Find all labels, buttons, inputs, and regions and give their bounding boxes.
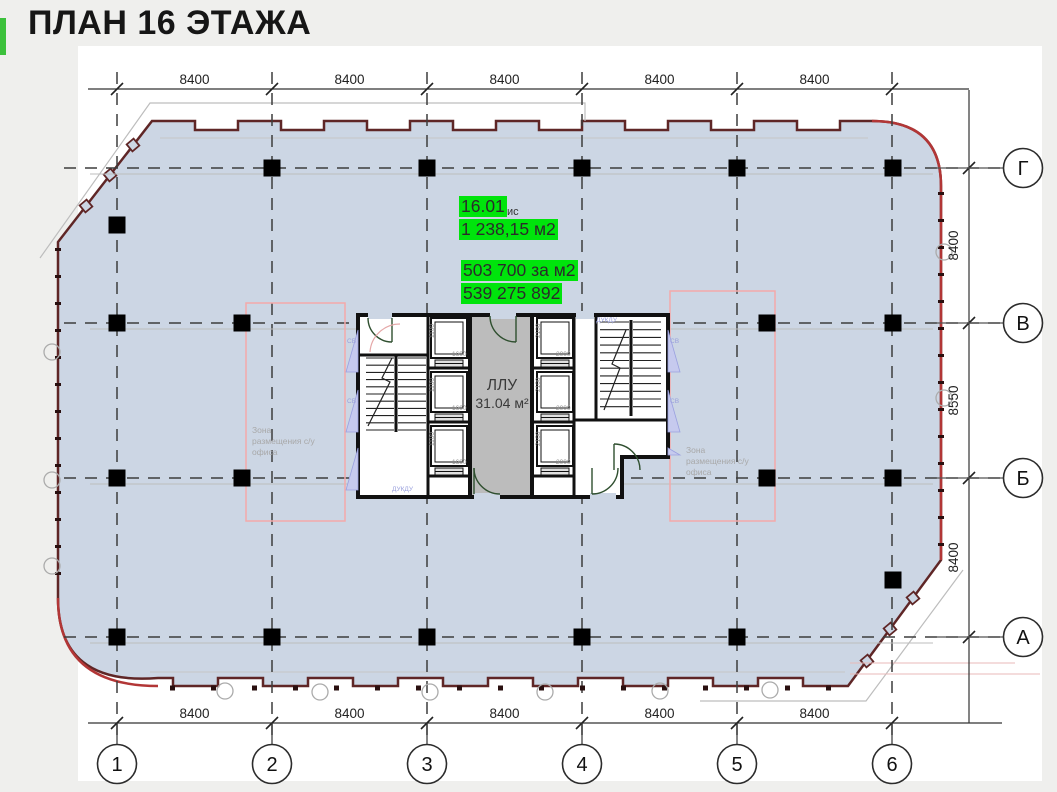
column bbox=[109, 217, 126, 234]
axis-label: В bbox=[1016, 313, 1029, 335]
lobby-name: ЛЛУ bbox=[487, 377, 517, 394]
dimension-label: 8400 bbox=[334, 706, 364, 721]
dimension-label: 8400 bbox=[489, 72, 519, 87]
column bbox=[885, 315, 902, 332]
dimension-label: 8400 bbox=[946, 230, 961, 260]
dimension-label: 8400 bbox=[489, 706, 519, 721]
column bbox=[885, 160, 902, 177]
dimension-label: 8400 bbox=[644, 72, 674, 87]
column bbox=[264, 160, 281, 177]
vent-label: СВ bbox=[347, 398, 356, 405]
vent-label: СВ bbox=[670, 338, 679, 345]
sanitary-zone-right-label: Зона размещения с/у офиса bbox=[686, 445, 776, 478]
page-title: ПЛАН 16 ЭТАЖА bbox=[28, 4, 311, 43]
dimension-label: 8400 bbox=[946, 542, 961, 572]
axis-label: 6 bbox=[886, 754, 897, 776]
unit-total-price-label[interactable]: 539 275 892 bbox=[461, 283, 562, 304]
dimension-label: 8550 bbox=[946, 385, 961, 415]
elevator-dim-label: 2000 bbox=[556, 459, 571, 466]
elevator-dim-label: 1100 bbox=[429, 378, 436, 392]
column bbox=[234, 470, 251, 487]
axis-label: Б bbox=[1016, 468, 1029, 490]
elevator-dim-label: 1600 bbox=[452, 405, 467, 412]
column bbox=[419, 160, 436, 177]
axis-label: А bbox=[1016, 627, 1030, 649]
elevator-dim-label: 1600 bbox=[452, 459, 467, 466]
dimension-label: 8400 bbox=[179, 72, 209, 87]
dimension-label: 8400 bbox=[179, 706, 209, 721]
unit-suffix-label: ис bbox=[507, 206, 519, 218]
unit-price-per-m2-label[interactable]: 503 700 за м2 bbox=[461, 260, 578, 281]
column bbox=[234, 315, 251, 332]
axis-label: 3 bbox=[421, 754, 432, 776]
column bbox=[759, 315, 776, 332]
elevator-dim-label: 2100 bbox=[535, 377, 542, 392]
elevator-dim-label: 1600 bbox=[452, 351, 467, 358]
axis-label: 1 bbox=[111, 754, 122, 776]
column bbox=[264, 629, 281, 646]
column bbox=[109, 470, 126, 487]
unit-number-label[interactable]: 16.01 bbox=[459, 196, 507, 217]
column bbox=[729, 629, 746, 646]
column bbox=[109, 315, 126, 332]
elevator-dim-label: 1100 bbox=[429, 432, 436, 446]
duct-label: ДУКДУ bbox=[596, 317, 618, 324]
dimension-label: 8400 bbox=[799, 72, 829, 87]
axis-label: 5 bbox=[731, 754, 742, 776]
vent-label: СВ bbox=[347, 338, 356, 345]
duct-label: ДУКДУ bbox=[392, 486, 414, 493]
column bbox=[109, 629, 126, 646]
green-tab bbox=[0, 18, 6, 55]
vent-label: СВ bbox=[670, 398, 679, 405]
unit-area-label[interactable]: 1 238,15 м2 bbox=[459, 219, 558, 240]
dimension-label: 8400 bbox=[334, 72, 364, 87]
column bbox=[574, 160, 591, 177]
column bbox=[574, 629, 591, 646]
column bbox=[885, 572, 902, 589]
floor-plan-page: СВ СВ СВ СВ ДУКДУ ДУКДУ 1100110011001600… bbox=[0, 0, 1057, 792]
elevator-dim-label: 2000 bbox=[556, 405, 571, 412]
elevator-dim-label: 1100 bbox=[429, 324, 436, 338]
axis-label: Г bbox=[1018, 158, 1029, 180]
column bbox=[729, 160, 746, 177]
floor-plan-drawing: СВ СВ СВ СВ ДУКДУ ДУКДУ 1100110011001600… bbox=[0, 0, 1057, 792]
dimension-label: 8400 bbox=[799, 706, 829, 721]
elevator-dim-label: 2100 bbox=[535, 323, 542, 338]
elevator-dim-label: 2000 bbox=[556, 351, 571, 358]
axis-label: 4 bbox=[576, 754, 587, 776]
axis-label: 2 bbox=[266, 754, 277, 776]
dimension-label: 8400 bbox=[644, 706, 674, 721]
lobby-area: 31.04 м² bbox=[475, 395, 529, 411]
column bbox=[885, 470, 902, 487]
column bbox=[419, 629, 436, 646]
sanitary-zone-left-label: Зона размещения с/у офиса bbox=[252, 425, 342, 458]
elevator-dim-label: 2100 bbox=[535, 431, 542, 446]
